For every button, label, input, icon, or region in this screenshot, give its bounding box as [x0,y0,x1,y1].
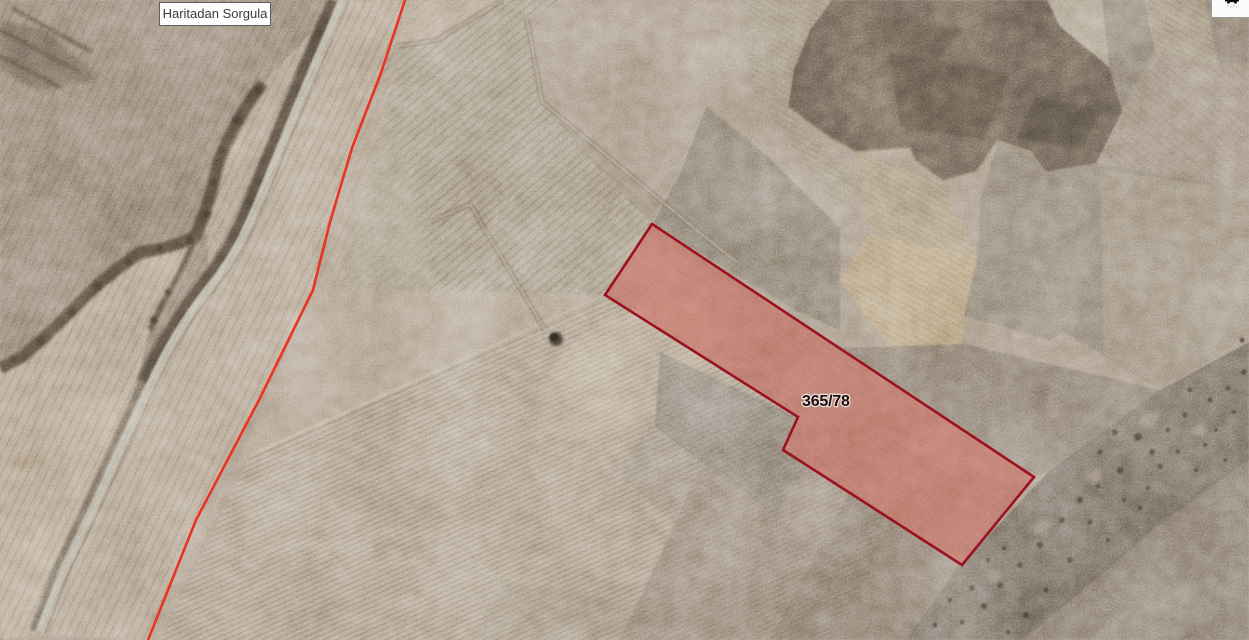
svg-text:365/78: 365/78 [802,393,850,410]
